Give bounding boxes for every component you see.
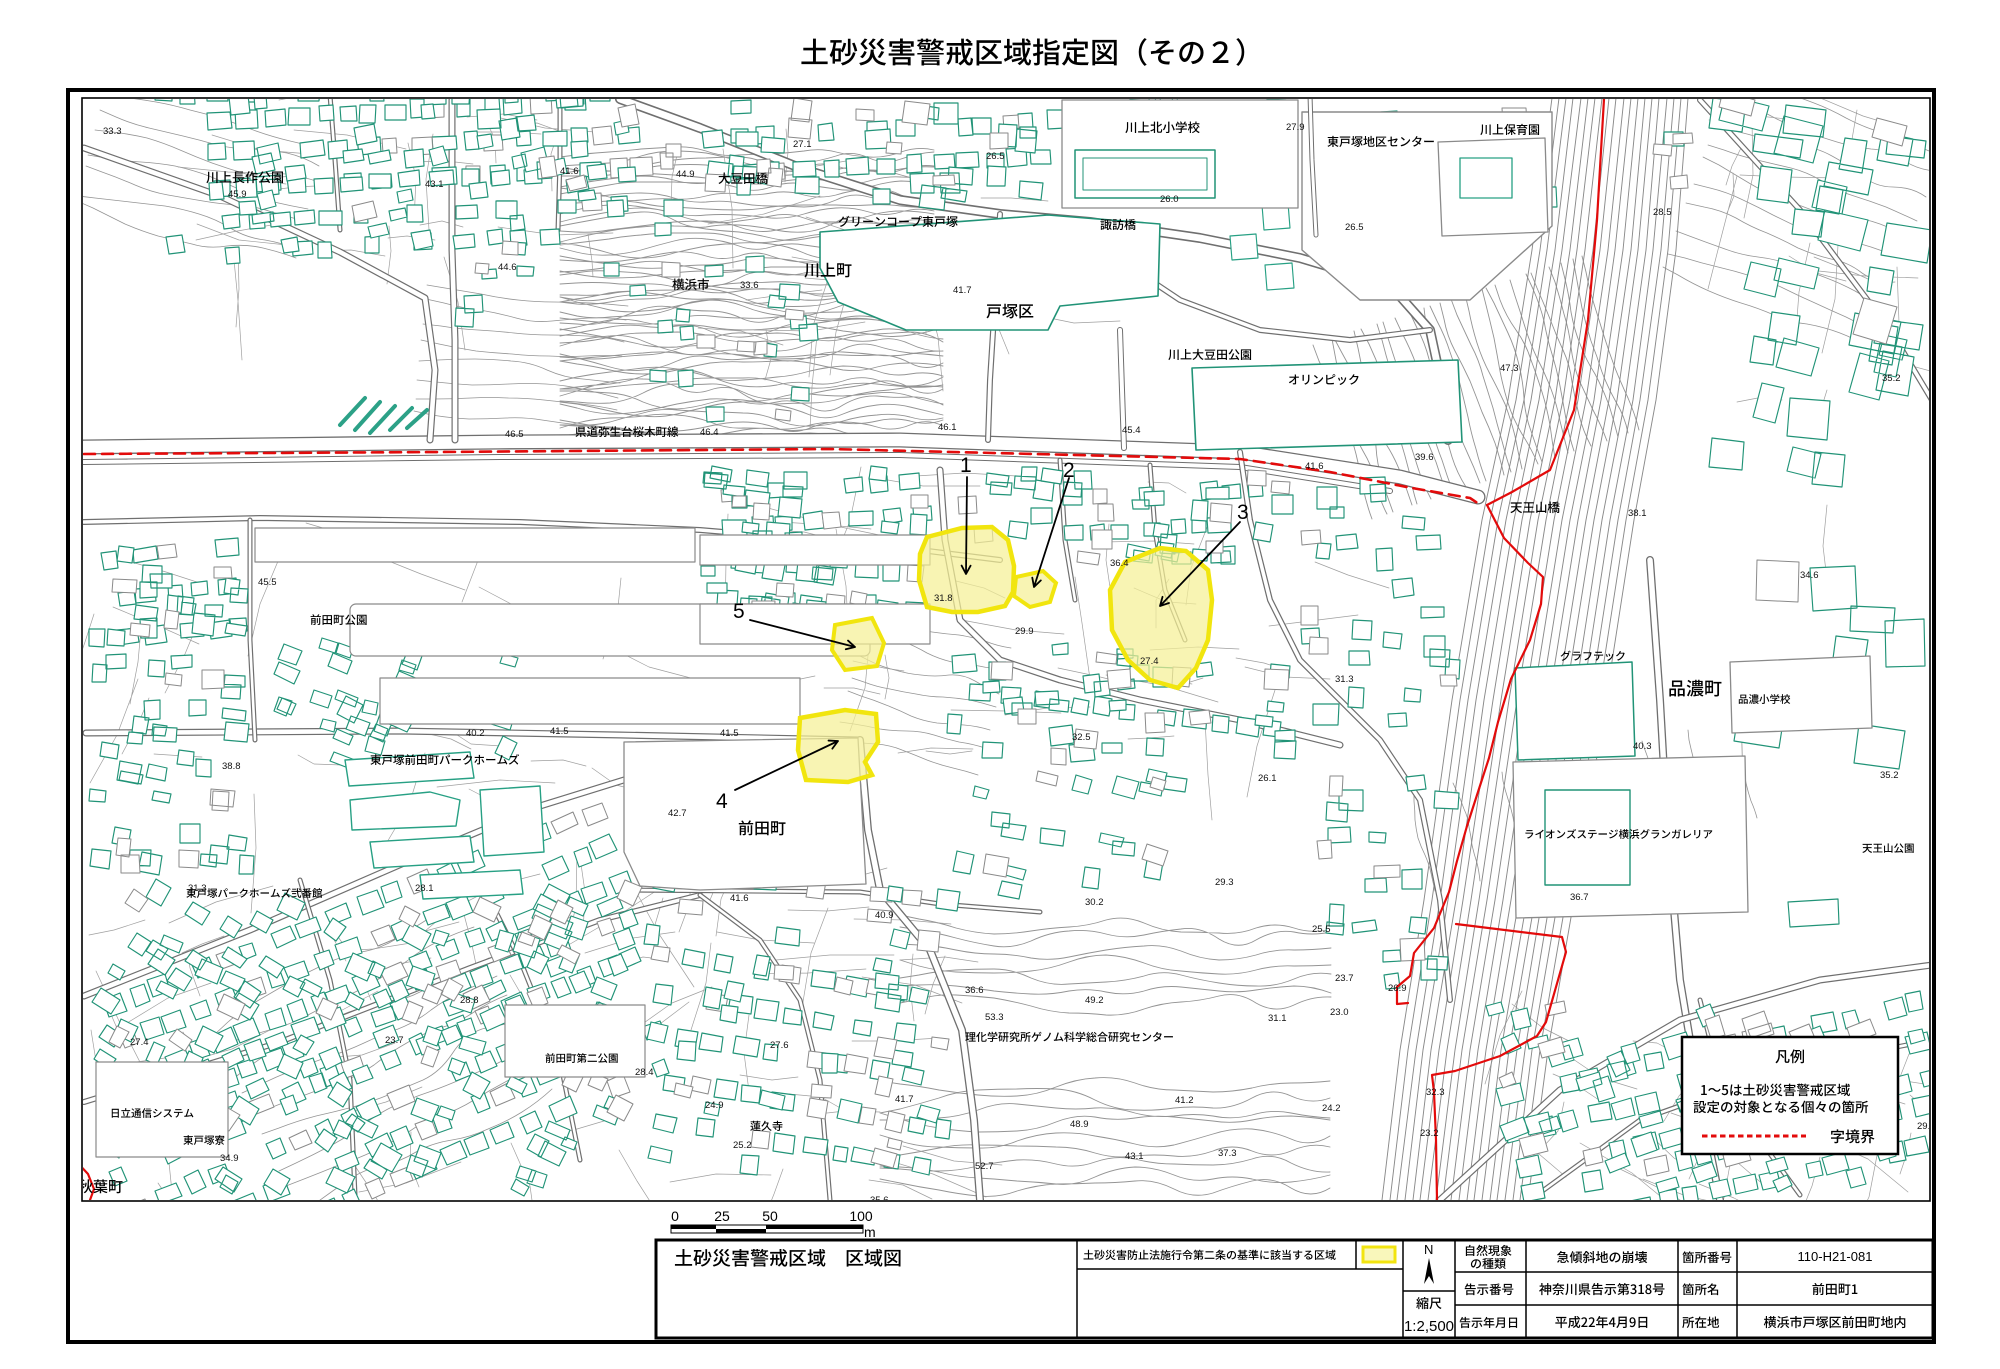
svg-text:25.5: 25.5 [1312, 924, 1331, 935]
svg-text:0: 0 [671, 1208, 679, 1224]
svg-text:m: m [864, 1224, 876, 1240]
svg-text:28.1: 28.1 [415, 883, 434, 894]
svg-text:34.9: 34.9 [220, 1153, 239, 1164]
svg-text:32.3: 32.3 [1426, 1087, 1445, 1098]
svg-text:1:2,500: 1:2,500 [1404, 1318, 1454, 1335]
svg-text:39.6: 39.6 [1415, 452, 1434, 463]
svg-text:42.7: 42.7 [668, 808, 687, 819]
svg-text:41.6: 41.6 [1305, 461, 1324, 472]
svg-text:23.7: 23.7 [385, 1035, 404, 1046]
svg-text:41.5: 41.5 [550, 726, 569, 737]
svg-text:31.8: 31.8 [934, 593, 953, 604]
svg-text:5: 5 [733, 600, 745, 623]
svg-text:50: 50 [762, 1208, 778, 1224]
svg-text:48.9: 48.9 [1070, 1119, 1089, 1130]
svg-text:45.5: 45.5 [258, 577, 277, 588]
svg-text:43.1: 43.1 [425, 179, 444, 190]
svg-text:52.7: 52.7 [975, 1161, 994, 1172]
svg-text:23.7: 23.7 [1335, 973, 1354, 984]
svg-text:28.8: 28.8 [460, 995, 479, 1006]
svg-text:33.6: 33.6 [740, 280, 759, 291]
svg-text:24.9: 24.9 [705, 1100, 724, 1111]
svg-text:32.5: 32.5 [1072, 732, 1091, 743]
svg-text:36.6: 36.6 [965, 985, 984, 996]
svg-text:31.3: 31.3 [1335, 674, 1354, 685]
svg-text:3: 3 [1237, 501, 1249, 524]
svg-text:36.4: 36.4 [1110, 558, 1129, 569]
svg-text:41.2: 41.2 [1175, 1095, 1194, 1106]
svg-text:30.2: 30.2 [1085, 897, 1104, 908]
svg-text:29.3: 29.3 [1215, 877, 1234, 888]
svg-text:47.3: 47.3 [1500, 363, 1519, 374]
svg-text:25.2: 25.2 [733, 1140, 752, 1151]
svg-text:26.9: 26.9 [1388, 983, 1407, 994]
svg-text:28.4: 28.4 [635, 1067, 654, 1078]
svg-text:41.6: 41.6 [730, 893, 749, 904]
svg-text:100: 100 [849, 1208, 873, 1224]
svg-text:41.6: 41.6 [560, 166, 579, 177]
svg-text:41.7: 41.7 [953, 285, 972, 296]
svg-text:27.1: 27.1 [793, 139, 812, 150]
svg-text:27.9: 27.9 [1286, 122, 1305, 133]
svg-text:24.2: 24.2 [1322, 1103, 1341, 1114]
svg-text:25: 25 [714, 1208, 730, 1224]
svg-text:45.4: 45.4 [1122, 425, 1141, 436]
svg-text:40.2: 40.2 [466, 728, 485, 739]
svg-text:2: 2 [1063, 459, 1075, 482]
svg-text:23.2: 23.2 [1420, 1128, 1439, 1139]
svg-text:27.4: 27.4 [1140, 656, 1159, 667]
svg-text:44.9: 44.9 [676, 169, 695, 180]
svg-text:38.8: 38.8 [222, 761, 241, 772]
svg-text:40.3: 40.3 [1633, 741, 1652, 752]
svg-text:1: 1 [960, 454, 972, 477]
svg-text:4: 4 [716, 790, 728, 813]
svg-text:45.9: 45.9 [228, 189, 247, 200]
svg-text:46.5: 46.5 [505, 429, 524, 440]
svg-text:110-H21-081: 110-H21-081 [1798, 1249, 1873, 1264]
svg-text:29.9: 29.9 [1015, 626, 1034, 637]
svg-text:40.9: 40.9 [875, 910, 894, 921]
svg-text:27.4: 27.4 [130, 1037, 149, 1048]
svg-text:41.7: 41.7 [895, 1094, 914, 1105]
svg-text:41.5: 41.5 [720, 728, 739, 739]
svg-text:49.2: 49.2 [1085, 995, 1104, 1006]
svg-text:26.1: 26.1 [1258, 773, 1277, 784]
svg-text:34.6: 34.6 [1800, 570, 1819, 581]
svg-text:26.5: 26.5 [986, 151, 1005, 162]
svg-text:44.6: 44.6 [498, 262, 517, 273]
svg-text:31.1: 31.1 [1268, 1013, 1287, 1024]
svg-text:26.0: 26.0 [1160, 194, 1179, 205]
svg-text:36.7: 36.7 [1570, 892, 1589, 903]
svg-text:27.6: 27.6 [770, 1040, 789, 1051]
svg-text:53.3: 53.3 [985, 1012, 1004, 1023]
svg-text:31.3: 31.3 [188, 883, 207, 894]
svg-text:43.1: 43.1 [1125, 1151, 1144, 1162]
svg-text:38.1: 38.1 [1628, 508, 1647, 519]
svg-text:35.2: 35.2 [1880, 770, 1899, 781]
svg-text:33.3: 33.3 [103, 126, 122, 137]
svg-text:46.4: 46.4 [700, 427, 719, 438]
svg-text:26.5: 26.5 [1345, 222, 1364, 233]
svg-text:37.3: 37.3 [1218, 1148, 1237, 1159]
svg-text:46.1: 46.1 [938, 422, 957, 433]
svg-text:N: N [1424, 1242, 1433, 1257]
svg-text:23.0: 23.0 [1330, 1007, 1349, 1018]
svg-text:28.5: 28.5 [1653, 207, 1672, 218]
svg-text:35.2: 35.2 [1882, 373, 1901, 384]
